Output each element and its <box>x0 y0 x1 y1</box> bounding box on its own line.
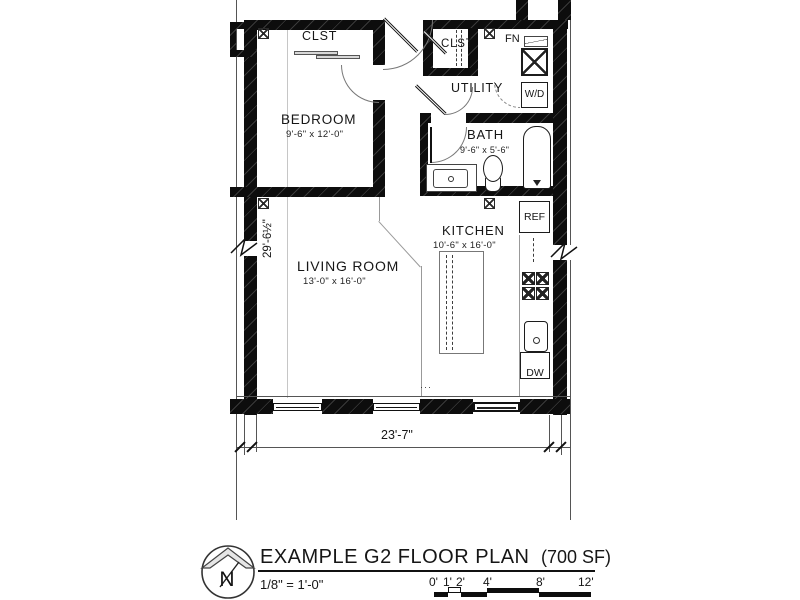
dim-extension-line <box>244 415 245 455</box>
dimension-height: 29'-6½" <box>263 219 275 258</box>
exterior-wall-right <box>553 20 567 415</box>
title-underline <box>258 570 595 572</box>
room-dims-bath: 9'-6" x 5'-6" <box>460 146 509 155</box>
refrigerator: REF <box>519 201 550 233</box>
threshold-dots: ··· <box>420 383 432 392</box>
scalebar-segment <box>487 588 539 593</box>
column-marker <box>258 198 269 209</box>
scalebar-segment <box>539 592 591 597</box>
exterior-wall-top-right <box>423 20 568 29</box>
scalebar-segment <box>434 592 448 597</box>
room-boundary-line <box>379 197 380 221</box>
room-label-utility: UTILITY <box>451 82 503 95</box>
kitchen-sink-drain <box>533 337 540 344</box>
furnace-label: FN <box>505 34 520 45</box>
dishwasher-label: DW <box>526 368 544 379</box>
bath-wall-top-b <box>466 113 553 123</box>
room-label-kitchen: KITCHEN <box>442 224 505 237</box>
floor-plan-sheet: W/D FN REF DW ··· CLST CLST BEDROOM 9'-6… <box>0 0 800 600</box>
north-arrow: N <box>196 543 260 600</box>
range-burner <box>522 287 535 300</box>
room-label-closet2: CLST <box>441 39 474 51</box>
utility-door-leaf <box>415 84 447 115</box>
wall-break-symbol <box>548 240 582 266</box>
dishwasher-box: DW <box>520 352 550 379</box>
scalebar-segment <box>461 592 487 597</box>
range-burner <box>536 287 549 300</box>
bath-sink-drain <box>448 176 454 182</box>
room-label-closet1: CLST <box>302 30 337 43</box>
north-letter: N <box>219 568 234 591</box>
column-marker <box>258 28 269 39</box>
dimension-line <box>237 447 570 448</box>
range-burner <box>536 272 549 285</box>
corridor-wall-stub-a <box>516 0 528 20</box>
sheet-title: EXAMPLE G2 FLOOR PLAN <box>260 547 529 567</box>
tub-drain-icon <box>533 180 541 186</box>
refrigerator-label: REF <box>524 212 545 223</box>
wall-break-symbol <box>228 236 262 262</box>
wall-stub-left-b <box>230 50 257 57</box>
scale-note: 1/8" = 1'-0" <box>260 578 323 591</box>
scalebar-label-8: 8' <box>536 576 545 588</box>
column-grid-line <box>287 30 288 398</box>
washer-dryer-label: W/D <box>525 90 544 100</box>
wall-inner-face-line <box>237 396 570 397</box>
scalebar-label-12: 12' <box>578 576 594 588</box>
window <box>473 402 520 412</box>
dimension-width: 23'-7" <box>381 429 413 442</box>
sheet-area: (700 SF) <box>541 548 611 566</box>
scalebar-label-4: 4' <box>483 576 492 588</box>
column-marker <box>484 28 495 39</box>
bedroom-door-swing-arc <box>341 65 379 103</box>
bath-door-leaf <box>430 127 432 163</box>
wall-stub-left-a <box>230 22 244 29</box>
room-label-bath: BATH <box>467 128 504 141</box>
island-overhang-dashed <box>452 255 453 350</box>
furnace-flue-box <box>524 36 548 47</box>
scalebar-segment <box>448 587 461 593</box>
dim-extension-line <box>561 415 562 455</box>
room-dims-bedroom: 9'-6" x 12'-0" <box>286 130 343 140</box>
closet-sliding-door <box>316 55 360 59</box>
column-marker <box>484 198 495 209</box>
window-wall-pier <box>322 399 373 414</box>
toilet-bowl <box>483 155 503 182</box>
island-overhang-dashed <box>446 255 447 350</box>
window-wall-pier <box>230 399 273 414</box>
room-boundary-line <box>421 266 422 397</box>
counter-centerline <box>533 238 534 262</box>
window <box>373 403 420 411</box>
exterior-wall-left <box>244 20 257 415</box>
washer-dryer-box: W/D <box>521 82 548 108</box>
room-dims-kitchen: 10'-6" x 16'-0" <box>433 241 496 251</box>
furnace-box <box>521 48 548 76</box>
bedroom-wall-right-lower <box>373 100 385 196</box>
window-wall-pier <box>520 399 570 414</box>
window <box>273 403 322 411</box>
entry-closet-wall-bottom <box>423 68 478 76</box>
room-label-living: LIVING ROOM <box>297 259 399 273</box>
room-dims-living: 13'-0" x 16'-0" <box>303 277 366 287</box>
window-wall-pier <box>420 399 473 414</box>
corridor-wall-stub-b <box>558 0 571 20</box>
bedroom-wall-bottom <box>230 187 385 197</box>
scalebar-label-0: 0' <box>429 576 438 588</box>
range-burner <box>522 272 535 285</box>
room-label-bedroom: BEDROOM <box>281 113 356 127</box>
